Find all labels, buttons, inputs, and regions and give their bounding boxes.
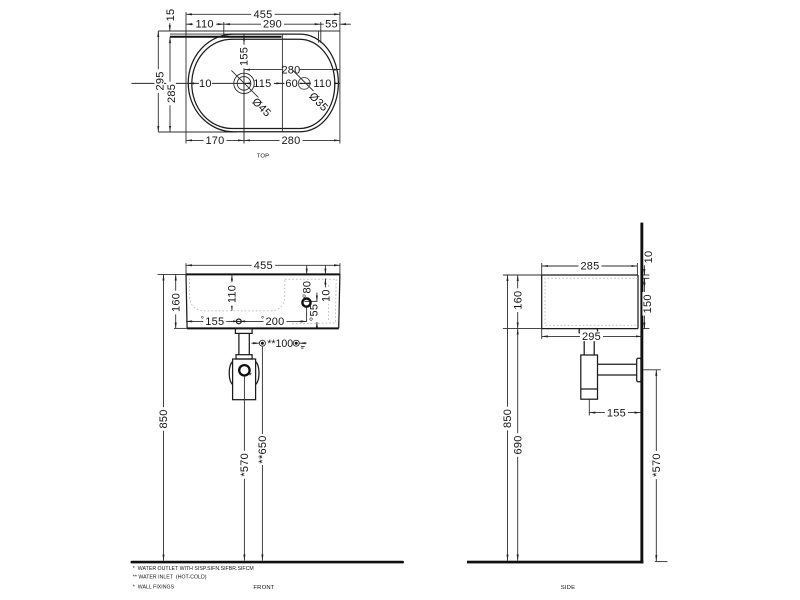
- svg-text:285: 285: [166, 84, 178, 103]
- svg-text:110: 110: [313, 78, 331, 90]
- svg-text:°: °: [201, 315, 204, 324]
- svg-text:*570: *570: [239, 453, 251, 477]
- svg-text:160: 160: [171, 293, 183, 312]
- svg-text:160: 160: [512, 291, 524, 310]
- svg-text:**650: **650: [257, 435, 269, 463]
- svg-text:155: 155: [239, 47, 251, 66]
- svg-text:115: 115: [253, 78, 271, 90]
- svg-text:°80: °80: [301, 281, 313, 298]
- svg-text:295: 295: [154, 71, 166, 90]
- svg-text:TOP: TOP: [257, 154, 270, 160]
- svg-text:°55: °55: [309, 304, 321, 321]
- svg-text:**100: **100: [267, 338, 293, 350]
- svg-text:110: 110: [227, 285, 239, 303]
- svg-text:850: 850: [502, 409, 514, 428]
- svg-text:110: 110: [195, 19, 213, 31]
- svg-text:10: 10: [321, 289, 333, 302]
- svg-text:SIDE: SIDE: [561, 585, 576, 591]
- svg-text:200: 200: [265, 316, 284, 328]
- svg-text:60: 60: [285, 78, 298, 90]
- svg-text:285: 285: [580, 261, 599, 273]
- svg-text:55: 55: [325, 19, 338, 31]
- svg-text:155: 155: [607, 407, 626, 419]
- svg-text:155: 155: [205, 316, 224, 328]
- svg-text:** WATER INLET (HOT-COLD): ** WATER INLET (HOT-COLD): [133, 575, 207, 581]
- svg-text:* WATER OUTLET WITH SISP.SIFN: * WATER OUTLET WITH SISP.SIFN.SIFBR.SIFC…: [133, 566, 254, 572]
- svg-text:*: *: [249, 372, 252, 381]
- svg-text:280: 280: [281, 135, 300, 147]
- svg-text:150: 150: [642, 294, 654, 313]
- svg-text:295: 295: [582, 331, 601, 343]
- svg-text:FRONT: FRONT: [253, 585, 274, 591]
- svg-text:* WALL FIXINGS: * WALL FIXINGS: [133, 585, 175, 591]
- svg-text:455: 455: [254, 260, 273, 272]
- svg-text:*570: *570: [651, 453, 663, 477]
- svg-text:850: 850: [158, 409, 170, 428]
- svg-text:15: 15: [165, 9, 177, 22]
- svg-text:°: °: [261, 315, 264, 324]
- svg-text:280: 280: [281, 64, 300, 76]
- svg-text:10: 10: [643, 251, 655, 264]
- svg-text:690: 690: [512, 435, 524, 454]
- svg-text:10: 10: [199, 78, 212, 90]
- svg-text:290: 290: [263, 19, 282, 31]
- svg-text:170: 170: [205, 135, 224, 147]
